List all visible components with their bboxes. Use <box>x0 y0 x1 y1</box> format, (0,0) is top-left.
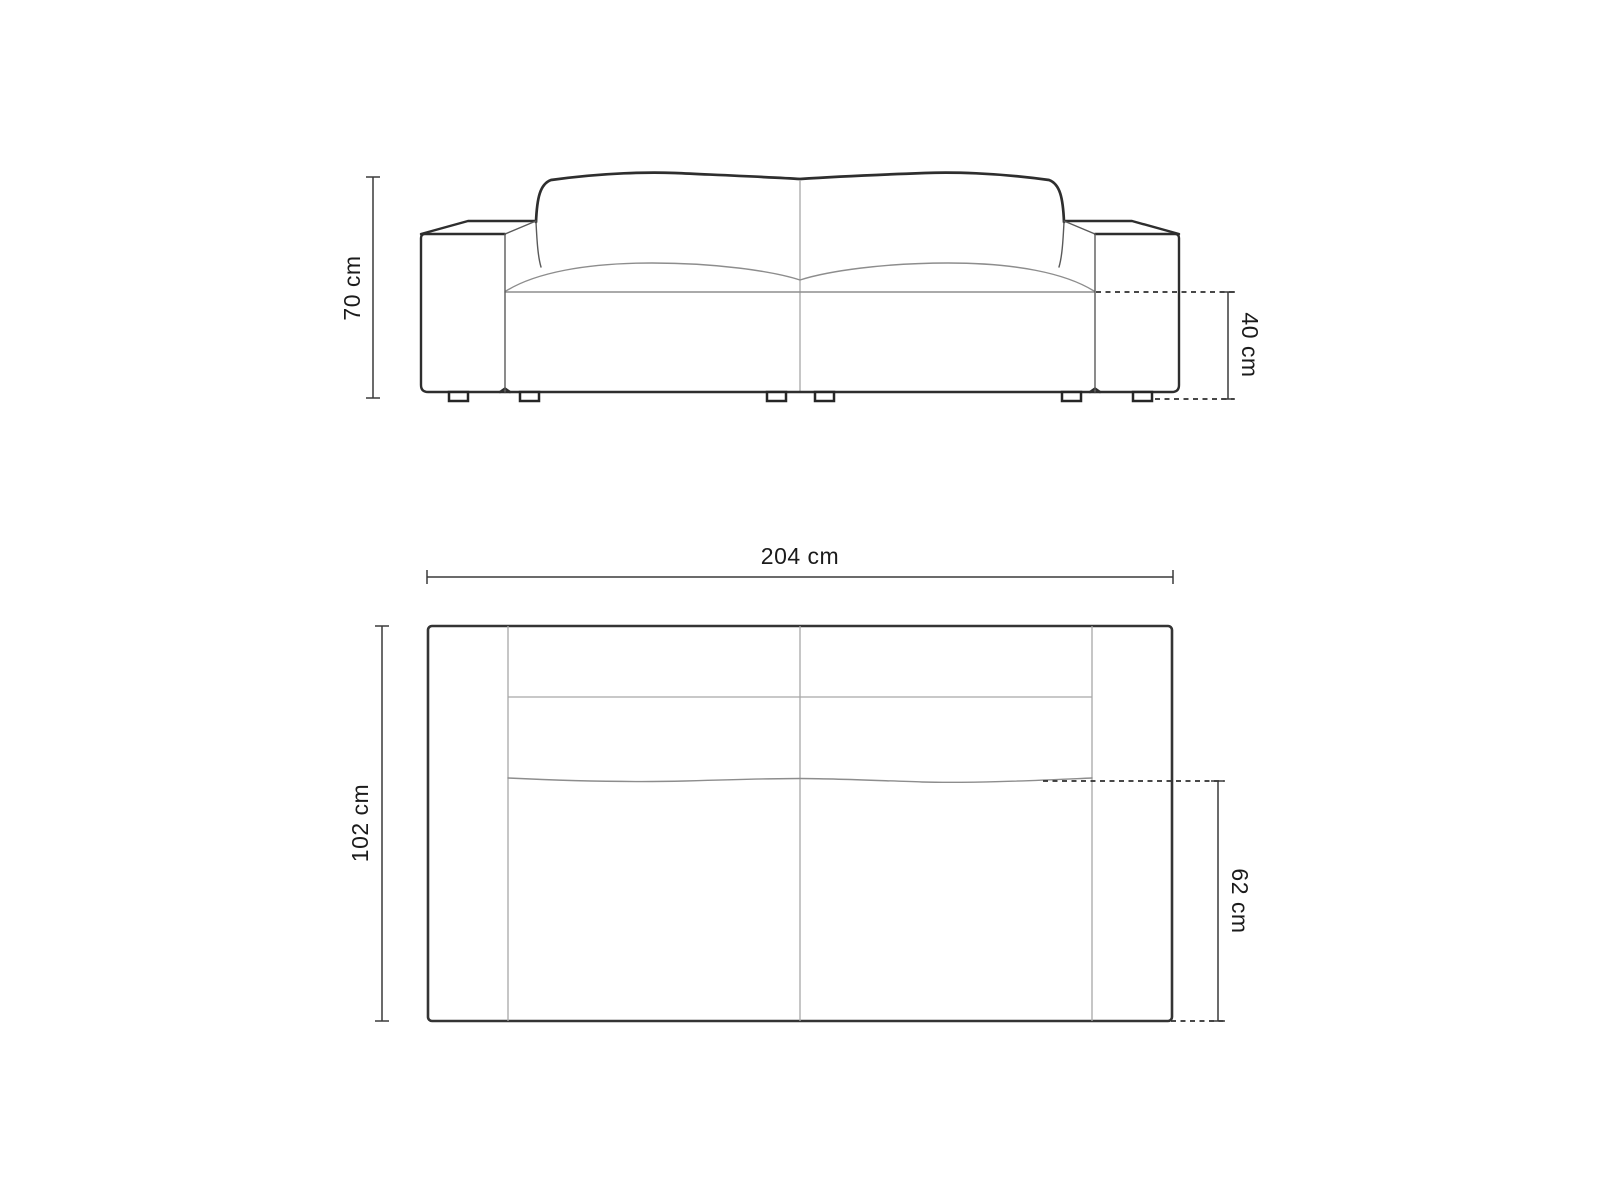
front-height-dimension: 70 cm <box>339 177 380 398</box>
depth-dimension: 102 cm <box>347 626 389 1021</box>
top-view <box>428 626 1172 1021</box>
foot <box>449 392 468 401</box>
backrest-right-lower-edge <box>1059 222 1064 267</box>
depth-label: 102 cm <box>347 784 373 862</box>
foot <box>1062 392 1081 401</box>
armrest-right-rear-slant <box>1064 221 1095 234</box>
sofa-dimension-drawing: 70 cm 40 cm 204 cm <box>0 0 1600 1200</box>
backrest-left-lower-edge <box>536 222 541 267</box>
foot <box>767 392 786 401</box>
seat-depth-label: 62 cm <box>1227 868 1253 933</box>
seat-height-label: 40 cm <box>1237 312 1263 377</box>
sofa-feet <box>449 392 1152 401</box>
width-dimension: 204 cm <box>427 543 1173 584</box>
front-view <box>421 173 1179 401</box>
armrest-right-outline <box>1095 234 1179 392</box>
armrest-left-outline <box>421 234 505 392</box>
foot <box>815 392 834 401</box>
armrest-left-rear-slant <box>505 221 536 234</box>
width-label: 204 cm <box>761 543 839 569</box>
foot <box>520 392 539 401</box>
drawing-canvas: 70 cm 40 cm 204 cm <box>0 0 1600 1200</box>
front-height-label: 70 cm <box>339 255 365 320</box>
foot <box>1133 392 1152 401</box>
